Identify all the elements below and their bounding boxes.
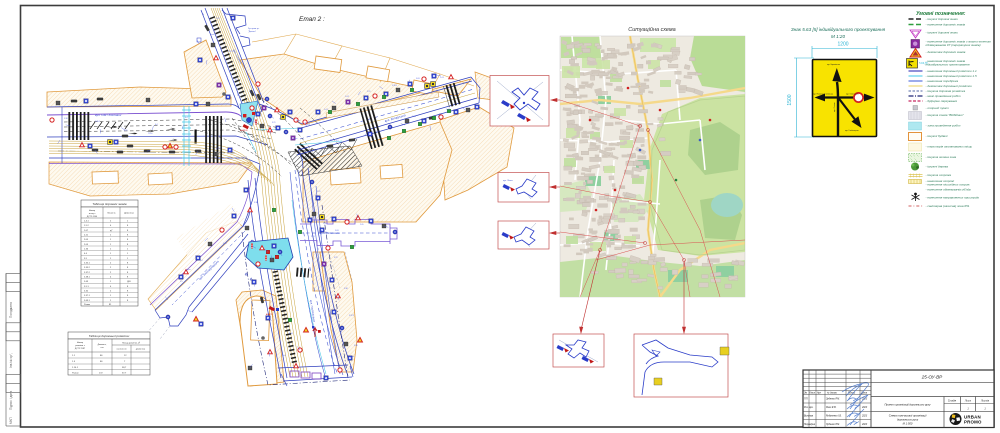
svg-text:вул. Оленiвська: вул. Оленiвська [846,94,858,96]
svg-text:вул. Новокостянтинiвська: вул. Новокостянтинiвська [813,94,833,96]
svg-text:2023: 2023 [861,424,868,426]
svg-text:Таблиця дорожньої розмiтки: Таблиця дорожньої розмiтки [89,334,130,338]
svg-text:1.4.1: 1.4.1 [376,131,380,133]
svg-text:1.4.1: 1.4.1 [324,109,328,111]
svg-text:- межi проведення робiт: - межi проведення робiт [926,94,961,98]
svg-text:Зуп.гром.тр.: Зуп.гром.тр. [248,28,260,30]
svg-text:PROMO: PROMO [964,420,982,425]
svg-text:2023: 2023 [861,407,868,409]
svg-text:Ситуацiйна схема: Ситуацiйна схема [628,26,675,33]
svg-text:АВАРIЯ: АВАРIЯ [266,313,273,316]
svg-text:- нанесення дорожньої розмiтки: - нанесення дорожньої розмiтки 1.5 [926,74,977,78]
svg-text:вул. Глибочицька: вул. Глибочицька [845,130,859,132]
svg-text:Лист: Лист [964,400,971,403]
svg-text:Таблиця дорожнiх знакiв: Таблиця дорожнiх знакiв [92,202,127,206]
svg-text:Зубенко Р.М.: Зубенко Р.М. [826,399,840,401]
svg-text:- iснуючi будiвлi: - iснуючi будiвлi [926,134,948,138]
svg-text:Разом: Разом [84,304,91,306]
svg-text:1.4.1: 1.4.1 [440,77,444,79]
svg-text:вул. Пimенська: вул. Пimенська [320,231,340,235]
svg-text:Кiлькiсть: Кiлькiсть [107,213,115,215]
svg-text:МКП: МКП [9,416,13,424]
svg-text:Площа розмiтки, м²: Площа розмiтки, м² [122,342,140,345]
svg-text:5.38: 5.38 [354,345,358,347]
svg-text:Етап 2 :: Етап 2 : [299,16,325,23]
svg-text:1200: 1200 [837,42,848,48]
svg-text:облямуванням 07 (перерахунок з: облямуванням 07 (перерахунок знакiв) [926,43,981,47]
svg-text:Схема тимчасової органiзацiї: Схема тимчасової органiзацiї [889,414,927,418]
svg-text:5.37.2: 5.37.2 [228,51,233,53]
svg-text:4.4: 4.4 [200,260,203,262]
svg-text:2.21: 2.21 [367,91,371,93]
svg-text:Стадiя: Стадiя [948,400,957,403]
svg-text:3.21: 3.21 [272,122,276,124]
svg-text:- демонтаж дорожньої розмiтки: - демонтаж дорожньої розмiтки [926,84,973,88]
svg-text:4.4: 4.4 [283,355,286,357]
svg-text:5.5: 5.5 [180,281,183,283]
svg-text:5.63: 5.63 [416,78,420,80]
svg-text:- нанесення пiшохідних огорож: - нанесення пiшохідних огорож [926,183,971,187]
svg-text:- нанесення дорожнiх знакiв: - нанесення дорожнiх знакiв [926,22,966,26]
svg-text:ДСТУ 2587: ДСТУ 2587 [75,348,86,350]
svg-text:- опорний пункт: - опорний пункт [926,106,950,110]
svg-text:5.38.1: 5.38.1 [84,277,91,279]
svg-text:iндивiдуального проектування: iндивiдуального проектування [926,63,970,67]
svg-text:5.5: 5.5 [336,140,339,142]
svg-text:- нанесення поребрика: - нанесення поребрика [926,79,959,83]
svg-text:Рубаненко I.В.: Рубаненко I.В. [826,416,842,418]
svg-text:1.5.2: 1.5.2 [412,116,416,118]
svg-text:Довжина,: Довжина, [98,344,107,346]
svg-text:- санiтарна (захисна) зона 051: - санiтарна (захисна) зона 051 [926,204,970,208]
svg-text:- iснуюча огорожа: - iснуюча огорожа [926,173,952,177]
svg-text:3.21: 3.21 [334,257,338,259]
svg-text:5.37.2: 5.37.2 [349,315,354,317]
svg-text:3.34: 3.34 [289,333,293,335]
svg-text:3.21: 3.21 [124,130,128,132]
svg-text:5.5: 5.5 [235,79,238,81]
svg-text:Кiльк: Кiльк [810,393,816,395]
svg-text:Перевiрив: Перевiрив [804,424,816,426]
svg-text:5.63: 5.63 [223,243,227,245]
svg-text:- iснуючi дорожнi знаки: - iснуючi дорожнi знаки [926,31,959,35]
svg-text:5.38: 5.38 [64,118,68,120]
svg-text:Інв.№ ор“,: Інв.№ ор“, [9,353,13,368]
svg-text:1500: 1500 [787,94,793,105]
svg-text:- демонтаж дорожнiх знакiв: - демонтаж дорожнiх знакiв [926,50,966,54]
svg-text:4.4: 4.4 [155,124,158,126]
svg-text:5.35.1: 5.35.1 [392,85,397,87]
svg-text:вул. Пiмен.: вул. Пiмен. [503,180,514,182]
svg-text:5.35.1: 5.35.1 [216,148,221,150]
svg-text:- iснуюча зелена зона: - iснуюча зелена зона [926,155,957,159]
svg-text:- нанесення обмежувачiв об'їзд: - нанесення обмежувачiв об'їзду [926,188,972,192]
svg-text:2.05: 2.05 [323,223,327,225]
svg-text:1.14.1: 1.14.1 [72,367,79,369]
svg-text:2.21: 2.21 [317,191,321,193]
svg-text:5.35.2: 5.35.2 [84,267,91,269]
svg-text:- територiя запланованих мiсць: - територiя запланованих мiсць [926,145,973,149]
svg-text:ГIП: ГIП [804,399,808,401]
svg-text:- нанесення дорожньої розмiтки: - нанесення дорожньої розмiтки 1.1 [926,69,977,73]
svg-text:"Дитяча": "Дитяча" [248,31,256,33]
svg-text:- буферне паркування: - буферне паркування [926,99,958,103]
svg-text:1.4.1: 1.4.1 [446,109,450,111]
svg-text:дорожнього руху: дорожнього руху [897,418,919,422]
svg-text:Проект органiзацiї дорожнього: Проект органiзацiї дорожнього руху [885,403,932,407]
svg-text:Знак 5.63 [5] індивідуального: Знак 5.63 [5] індивідуального проектуван… [791,27,886,32]
svg-text:5.35.1: 5.35.1 [305,124,310,126]
svg-text:2.21: 2.21 [216,18,220,20]
svg-text:Номер: Номер [89,210,96,212]
svg-text:Підпис і дата: Підпис і дата [9,391,13,410]
svg-text:5.38: 5.38 [254,202,258,204]
svg-text:Разом: Разом [72,373,79,375]
svg-text:1.4.1: 1.4.1 [345,96,349,98]
svg-text:М 1:20: М 1:20 [831,34,845,39]
svg-text:5.37.1: 5.37.1 [84,295,91,297]
svg-text:Роз. арх.: Роз. арх. [804,407,814,409]
svg-text:Зубенко Р.М.: Зубенко Р.М. [826,424,840,426]
svg-text:розмiтки з: розмiтки з [75,345,84,347]
svg-text:Яхно Є.В.: Яхно Є.В. [825,407,837,409]
svg-text:5.35.1: 5.35.1 [95,121,100,123]
svg-text:4.4: 4.4 [185,117,188,119]
svg-text:№ докум.: № докум. [827,392,837,395]
svg-text:5.63.1: 5.63.1 [84,300,91,302]
svg-text:Зм: Зм [804,393,807,395]
svg-text:- нанесення направляючих прист: - нанесення направляючих пристроїв [926,196,980,200]
svg-text:АВАРIЯ: АВАРIЯ [240,129,248,132]
svg-text:Номер: Номер [77,342,84,344]
svg-text:знаку з: знаку з [89,213,96,215]
svg-text:- зона проведення робiт: - зона проведення робiт [926,124,961,128]
svg-text:2023: 2023 [861,416,868,418]
svg-text:- iснуючi дерева: - iснуючi дерева [926,165,949,169]
svg-text:- iснуюча схема "Вiдбiйник": - iснуюча схема "Вiдбiйник" [926,113,965,117]
svg-text:вул. Сiм'ї Хохлових: вул. Сiм'ї Хохлових [95,113,122,117]
svg-text:Погоджено: Погоджено [9,302,13,318]
svg-text:ДСТУ 4100: ДСТУ 4100 [87,216,98,218]
svg-text:Виконав: Виконав [804,416,814,418]
svg-text:- iснуюча дорожня розмiтка: - iснуюча дорожня розмiтка [926,89,966,93]
svg-text:5.37.2: 5.37.2 [84,272,91,274]
svg-text:25-ОУ-ВР: 25-ОУ-ВР [921,374,943,379]
svg-text:нанесення: нанесення [117,349,127,351]
svg-text:1.5.2: 1.5.2 [289,112,293,114]
svg-text:демонтаж: демонтаж [136,349,146,351]
svg-text:вул. Кирилiвська: вул. Кирилiвська [827,64,840,66]
svg-text:4.4: 4.4 [243,226,246,228]
svg-text:вул. Соляна: вул. Соляна [834,102,836,112]
svg-text:2.21: 2.21 [311,236,315,238]
svg-text:5.35.1: 5.35.1 [84,263,91,265]
svg-text:1.5.2: 1.5.2 [243,157,247,159]
svg-text:Демонтаж: Демонтаж [124,213,134,215]
svg-text:- iснуючi дорожнi знаки: - iснуючi дорожнi знаки [926,17,959,21]
svg-text:5.63: 5.63 [255,114,259,116]
svg-text:5.38: 5.38 [344,288,348,290]
svg-text:Листiв: Листiв [980,400,990,403]
svg-text:М 1:500: М 1:500 [903,422,913,426]
svg-text:2.05: 2.05 [360,224,364,226]
